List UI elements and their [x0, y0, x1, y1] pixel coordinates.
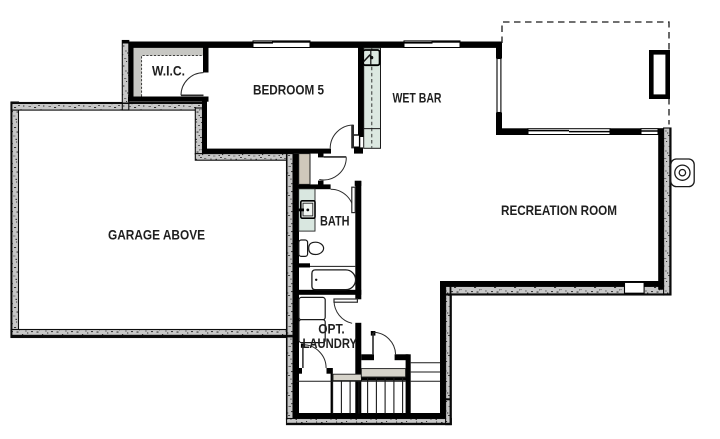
svg-text:WET BAR: WET BAR [393, 91, 442, 106]
svg-text:LAUNDRY: LAUNDRY [303, 335, 358, 351]
svg-text:W.I.C.: W.I.C. [152, 64, 185, 79]
svg-text:GARAGE ABOVE: GARAGE ABOVE [108, 227, 205, 242]
svg-text:BEDROOM 5: BEDROOM 5 [253, 83, 324, 98]
svg-text:RECREATION ROOM: RECREATION ROOM [501, 203, 617, 218]
svg-text:BATH: BATH [320, 213, 350, 228]
